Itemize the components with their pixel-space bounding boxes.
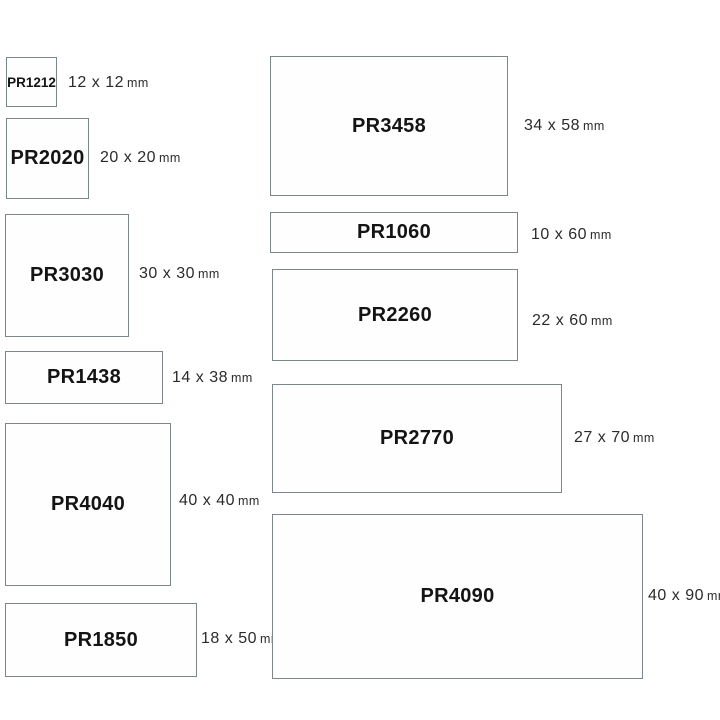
dimension-unit: mm [127,76,149,90]
dimension-value: 40 x 40 [179,492,235,509]
dimension-unit: mm [238,494,260,508]
dimension-unit: mm [198,267,220,281]
dimension-unit: mm [159,151,181,165]
dimension-unit: mm [583,119,605,133]
dimension-label-pr3458: 34 x 58mm [524,117,605,135]
dimension-label-pr4090: 40 x 90mm [648,587,720,605]
size-box-pr4040: PR4040 [5,423,171,586]
dimension-label-pr2020: 20 x 20mm [100,149,181,167]
size-box-pr3458: PR3458 [270,56,508,196]
product-code: PR3030 [30,264,104,287]
product-code: PR1060 [357,221,431,244]
dimension-value: 27 x 70 [574,429,630,446]
dimension-value: 34 x 58 [524,117,580,134]
dimension-value: 30 x 30 [139,265,195,282]
dimension-unit: mm [633,431,655,445]
product-size-diagram: PR1212 12 x 12mm PR2020 20 x 20mm PR3030… [0,0,720,720]
product-code: PR1850 [64,629,138,652]
size-box-pr2260: PR2260 [272,269,518,361]
dimension-value: 10 x 60 [531,226,587,243]
dimension-unit: mm [591,314,613,328]
dimension-unit: mm [590,228,612,242]
product-code: PR2020 [10,147,84,170]
size-box-pr4090: PR4090 [272,514,643,679]
size-box-pr1060: PR1060 [270,212,518,253]
dimension-value: 18 x 50 [201,630,257,647]
dimension-value: 12 x 12 [68,74,124,91]
product-code: PR1438 [47,366,121,389]
dimension-label-pr2260: 22 x 60mm [532,312,613,330]
size-box-pr3030: PR3030 [5,214,129,337]
dimension-unit: mm [707,589,720,603]
product-code: PR4040 [51,493,125,516]
size-box-pr2020: PR2020 [6,118,89,199]
product-code: PR2260 [358,304,432,327]
dimension-label-pr1438: 14 x 38mm [172,369,253,387]
dimension-label-pr1212: 12 x 12mm [68,74,149,92]
product-code: PR2770 [380,427,454,450]
dimension-value: 20 x 20 [100,149,156,166]
dimension-label-pr4040: 40 x 40mm [179,492,260,510]
dimension-unit: mm [231,371,253,385]
dimension-label-pr3030: 30 x 30mm [139,265,220,283]
dimension-value: 22 x 60 [532,312,588,329]
dimension-label-pr2770: 27 x 70mm [574,429,655,447]
size-box-pr1438: PR1438 [5,351,163,404]
dimension-label-pr1060: 10 x 60mm [531,226,612,244]
product-code: PR1212 [7,75,56,90]
dimension-value: 40 x 90 [648,587,704,604]
product-code: PR3458 [352,115,426,138]
size-box-pr1212: PR1212 [6,57,57,107]
size-box-pr2770: PR2770 [272,384,562,493]
dimension-label-pr1850: 18 x 50mm [201,630,282,648]
size-box-pr1850: PR1850 [5,603,197,677]
product-code: PR4090 [420,585,494,608]
dimension-value: 14 x 38 [172,369,228,386]
